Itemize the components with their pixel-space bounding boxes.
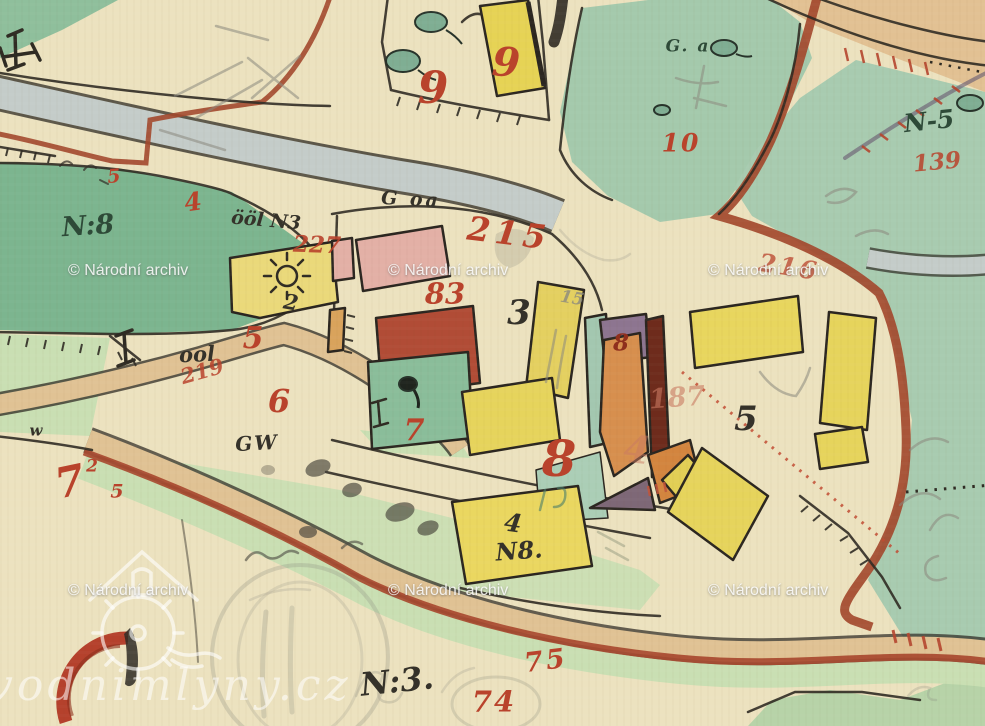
watermark-narodni-archiv: © Národní archiv (708, 582, 828, 600)
watermark-narodni-archiv: © Národní archiv (68, 262, 188, 280)
site-watermark-text: vodnimlyny.cz (0, 660, 352, 711)
watermark-narodni-archiv: © Národní archiv (388, 262, 508, 280)
watermark-narodni-archiv: © Národní archiv (708, 262, 828, 280)
watermark-narodni-archiv: © Národní archiv (68, 582, 188, 600)
map-sheet: N:8ööl N3oolG oa3G. aN-554N8.GWwN:3.2159… (0, 0, 985, 726)
mill-logo-icon (0, 540, 320, 726)
vodnimlyny-logo: vodnimlyny.cz (0, 540, 320, 726)
watermark-narodni-archiv: © Národní archiv (388, 582, 508, 600)
watermarks-layer: vodnimlyny.cz © Národní archiv© Národní … (0, 0, 985, 726)
